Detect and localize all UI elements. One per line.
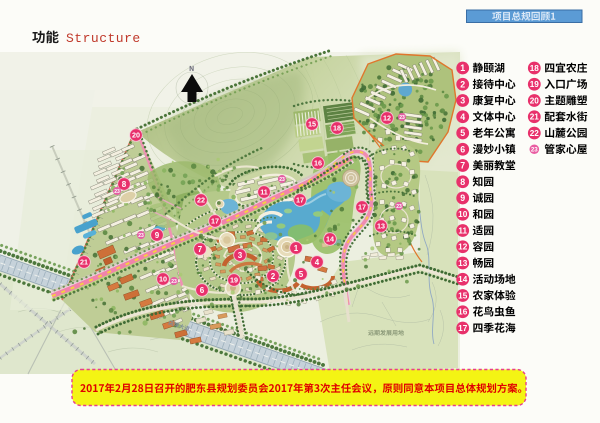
svg-text:2: 2 [460,79,465,89]
svg-text:17: 17 [458,324,468,333]
svg-text:11: 11 [260,188,268,197]
svg-text:Structure: Structure [66,31,141,46]
svg-text:4: 4 [460,112,465,122]
svg-text:4: 4 [315,258,320,267]
svg-text:20: 20 [132,131,140,140]
svg-text:17: 17 [296,196,304,205]
svg-text:23: 23 [279,177,285,183]
svg-text:5: 5 [460,128,465,138]
svg-text:21: 21 [80,258,88,267]
svg-text:21: 21 [530,113,540,122]
svg-text:14: 14 [458,275,468,284]
svg-text:10: 10 [458,210,468,219]
svg-text:6: 6 [460,144,465,154]
svg-text:15: 15 [308,120,316,129]
svg-text:18: 18 [333,124,341,133]
svg-text:1: 1 [294,244,299,253]
svg-text:1: 1 [460,63,465,73]
svg-text:23: 23 [396,204,402,210]
svg-text:8: 8 [122,180,127,189]
svg-text:23: 23 [114,189,120,195]
svg-text:23: 23 [171,279,177,285]
svg-text:3: 3 [460,96,465,106]
svg-text:12: 12 [383,114,391,123]
svg-text:7: 7 [198,245,203,254]
svg-text:15: 15 [458,291,468,300]
svg-text:9: 9 [460,193,465,203]
svg-text:16: 16 [458,308,468,317]
svg-text:16: 16 [314,159,322,168]
svg-text:3: 3 [238,251,243,260]
svg-text:19: 19 [530,80,540,89]
svg-text:5: 5 [299,270,304,279]
svg-text:10: 10 [159,275,167,284]
svg-text:8: 8 [460,177,465,187]
svg-text:23: 23 [531,146,538,153]
svg-text:23: 23 [138,233,144,239]
svg-text:17: 17 [211,217,219,226]
svg-text:9: 9 [155,231,160,240]
svg-text:7: 7 [460,161,465,171]
svg-text:22: 22 [530,129,540,138]
svg-text:11: 11 [458,226,467,235]
svg-text:18: 18 [530,64,540,73]
svg-text:13: 13 [458,259,468,268]
svg-text:22: 22 [197,196,205,205]
svg-text:14: 14 [326,235,334,244]
svg-text:19: 19 [230,276,238,285]
svg-text:12: 12 [458,243,468,252]
svg-text:13: 13 [377,222,385,231]
svg-text:6: 6 [200,286,205,295]
svg-text:20: 20 [530,96,540,105]
svg-text:2: 2 [271,272,276,281]
svg-text:23: 23 [399,115,405,121]
svg-text:17: 17 [358,203,366,212]
